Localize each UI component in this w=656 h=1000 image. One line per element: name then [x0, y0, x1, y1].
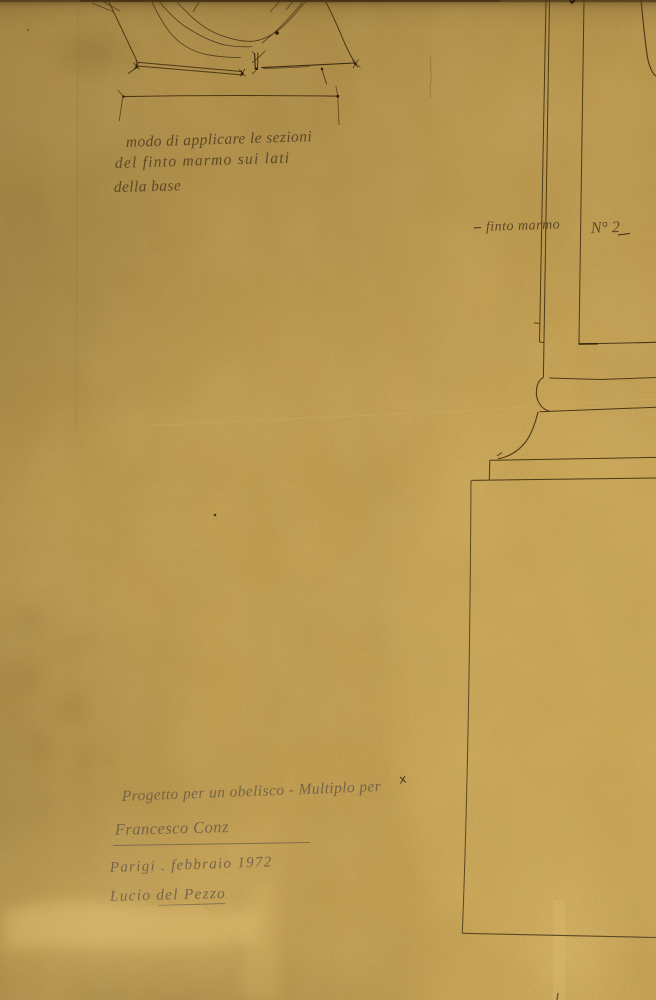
svg-text:N° 2: N° 2 [590, 219, 621, 237]
svg-text:finto marmo: finto marmo [486, 217, 561, 235]
svg-text:Francesco Conz: Francesco Conz [114, 817, 230, 839]
svg-text:della base: della base [114, 177, 182, 196]
svg-text:Lucio del Pezzo: Lucio del Pezzo [109, 885, 227, 905]
